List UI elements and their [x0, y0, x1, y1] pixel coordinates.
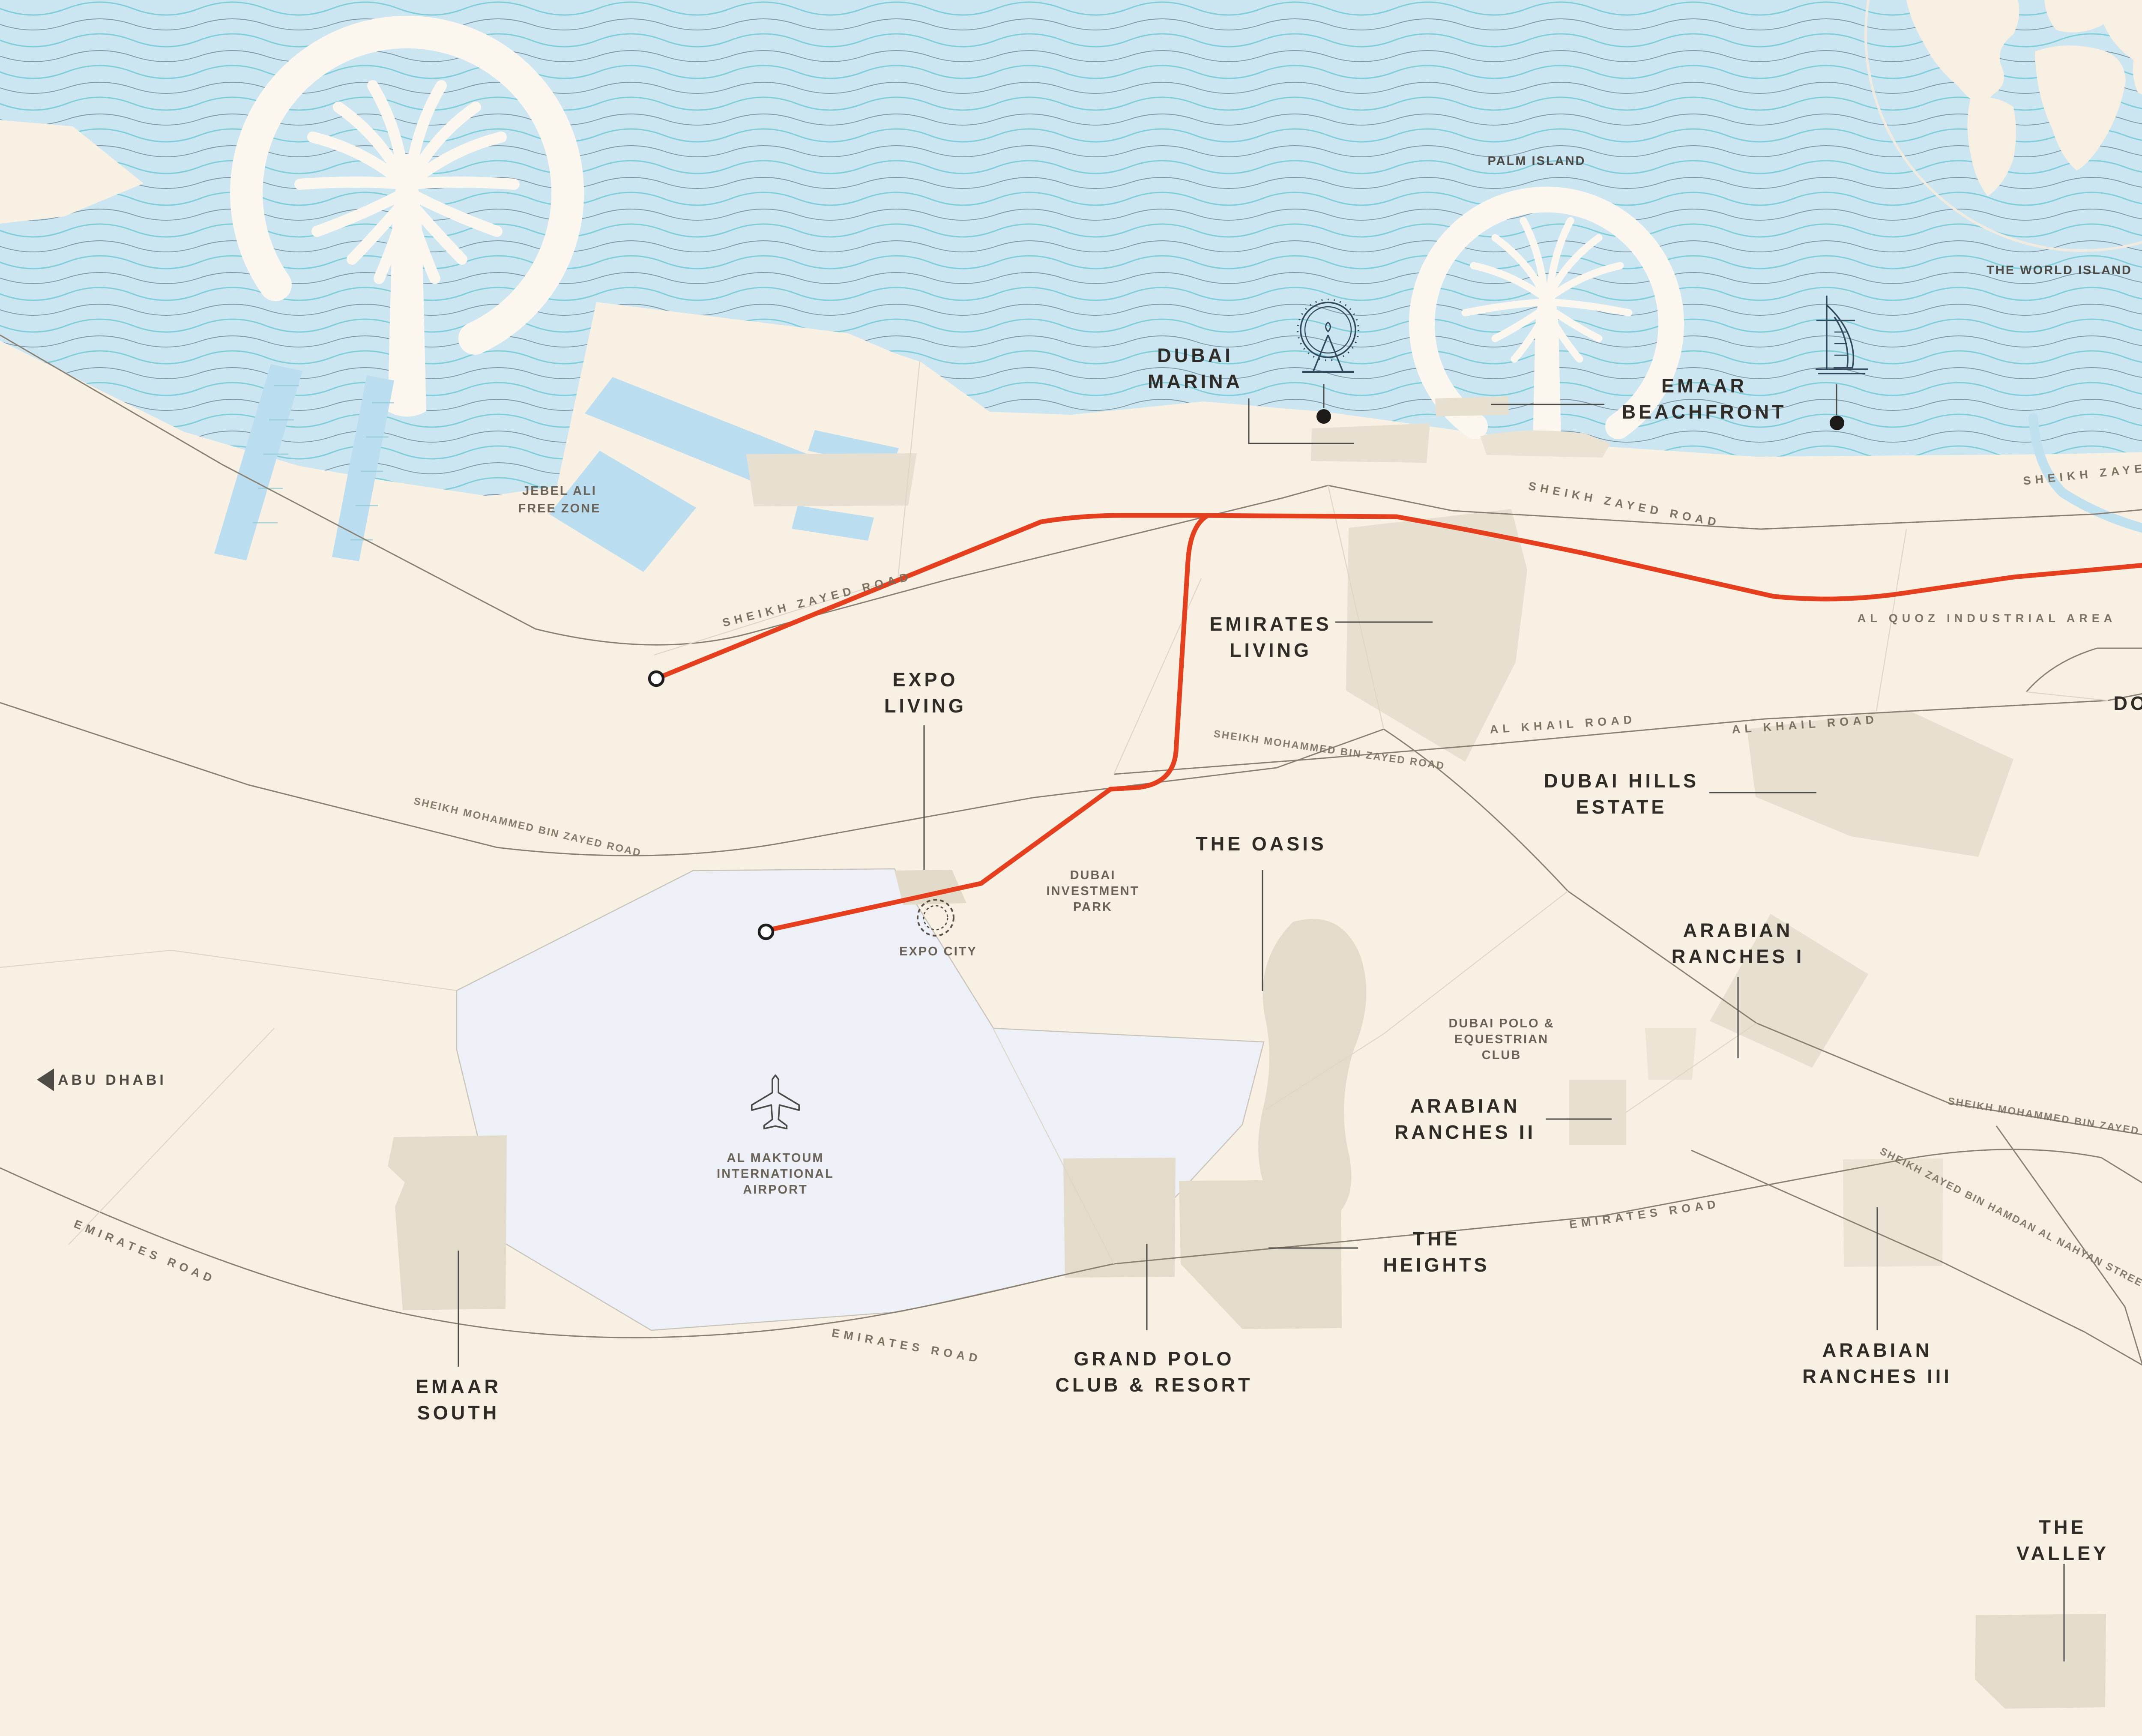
svg-text:EMIRATES: EMIRATES — [1209, 613, 1331, 635]
svg-text:LIVING: LIVING — [1230, 639, 1312, 661]
svg-text:EMAAR: EMAAR — [1661, 375, 1747, 397]
svg-text:GRAND POLO: GRAND POLO — [1074, 1348, 1234, 1370]
svg-text:ARABIAN: ARABIAN — [1410, 1095, 1520, 1117]
svg-text:AIRPORT: AIRPORT — [743, 1183, 808, 1197]
svg-text:THE OASIS: THE OASIS — [1196, 833, 1327, 855]
svg-text:ESTATE: ESTATE — [1576, 796, 1667, 818]
svg-text:CLUB & RESORT: CLUB & RESORT — [1056, 1374, 1253, 1396]
svg-text:DUBAI HILLS: DUBAI HILLS — [1544, 770, 1699, 792]
svg-text:FREE ZONE: FREE ZONE — [518, 502, 601, 515]
svg-text:INTERNATIONAL: INTERNATIONAL — [717, 1167, 834, 1181]
svg-text:DUBAI: DUBAI — [1070, 868, 1116, 882]
svg-text:PARK: PARK — [1073, 900, 1113, 914]
svg-text:RANCHES I: RANCHES I — [1672, 946, 1805, 967]
svg-text:LIVING: LIVING — [884, 695, 966, 717]
svg-text:ARABIAN: ARABIAN — [1683, 919, 1793, 941]
svg-text:EXPO: EXPO — [892, 669, 958, 691]
svg-text:EXPO CITY: EXPO CITY — [899, 945, 977, 958]
svg-text:THE: THE — [1413, 1228, 1460, 1250]
svg-text:SOUTH: SOUTH — [417, 1402, 500, 1424]
svg-text:EQUESTRIAN: EQUESTRIAN — [1454, 1033, 1549, 1046]
svg-text:ARABIAN: ARABIAN — [1822, 1339, 1933, 1361]
svg-text:RANCHES III: RANCHES III — [1802, 1365, 1952, 1387]
svg-text:EMAAR: EMAAR — [416, 1376, 501, 1398]
svg-text:HEIGHTS: HEIGHTS — [1383, 1254, 1490, 1276]
svg-text:AL QUOZ INDUSTRIAL AREA: AL QUOZ INDUSTRIAL AREA — [1858, 612, 2117, 625]
svg-text:RANCHES II: RANCHES II — [1394, 1121, 1536, 1143]
svg-text:CLUB: CLUB — [1482, 1048, 1522, 1062]
svg-text:JEBEL ALI: JEBEL ALI — [522, 484, 597, 498]
svg-text:THE WORLD ISLAND: THE WORLD ISLAND — [1986, 263, 2132, 277]
svg-text:BEACHFRONT: BEACHFRONT — [1622, 401, 1787, 423]
svg-text:DOWNTOWN: DOWNTOWN — [2113, 692, 2142, 714]
svg-text:MARINA: MARINA — [1148, 371, 1243, 392]
svg-text:INVESTMENT: INVESTMENT — [1047, 884, 1140, 898]
svg-text:DUBAI POLO &: DUBAI POLO & — [1448, 1017, 1554, 1030]
svg-text:THE: THE — [2039, 1516, 2087, 1538]
svg-text:VALLEY: VALLEY — [2016, 1542, 2109, 1564]
svg-text:ABU DHABI: ABU DHABI — [58, 1072, 167, 1088]
svg-text:DUBAI: DUBAI — [1157, 344, 1233, 366]
svg-text:PALM ISLAND: PALM ISLAND — [1487, 154, 1586, 168]
svg-text:AL MAKTOUM: AL MAKTOUM — [727, 1151, 824, 1165]
